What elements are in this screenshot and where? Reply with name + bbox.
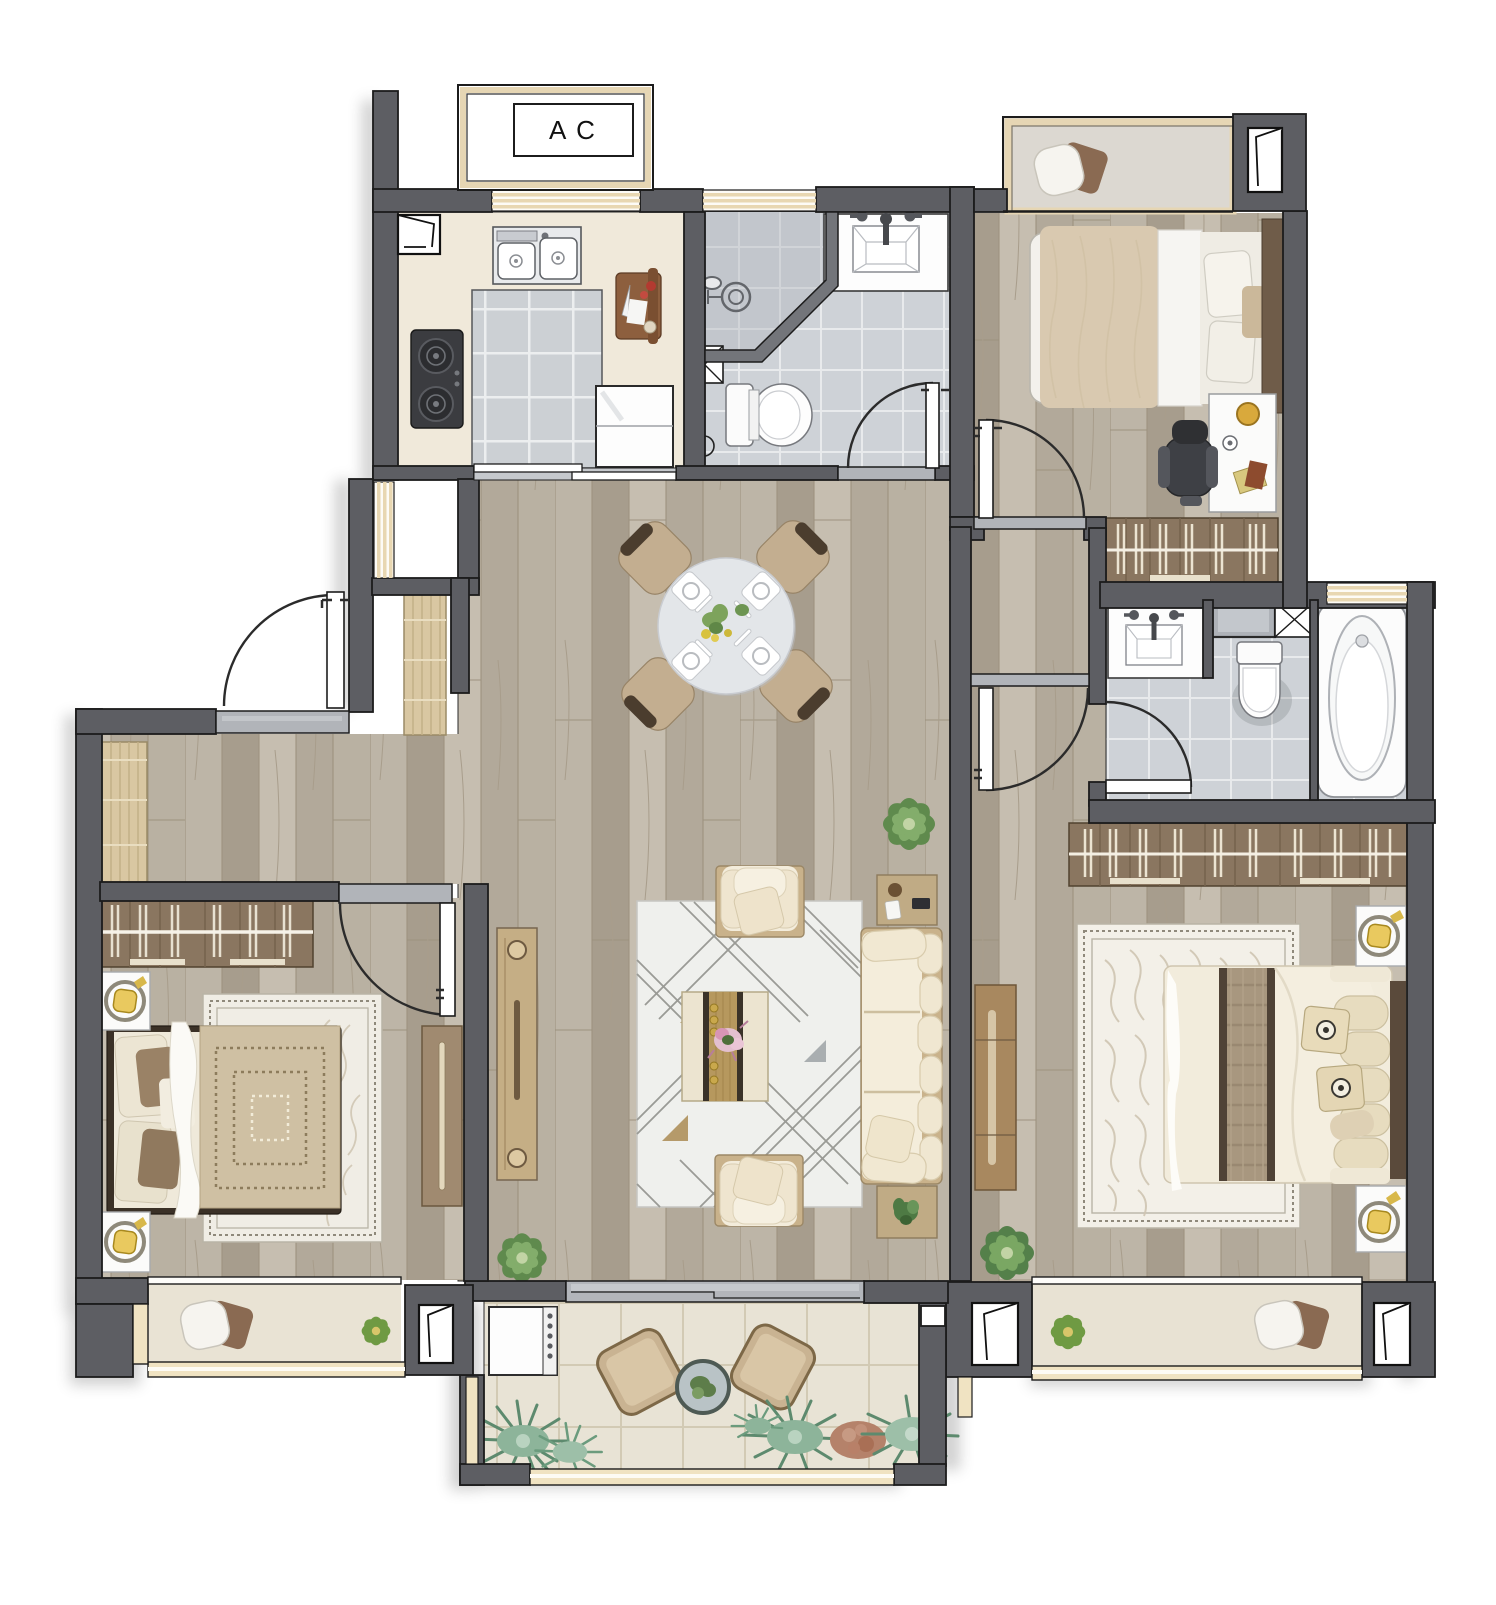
svg-text:A C: A C <box>549 115 597 145</box>
